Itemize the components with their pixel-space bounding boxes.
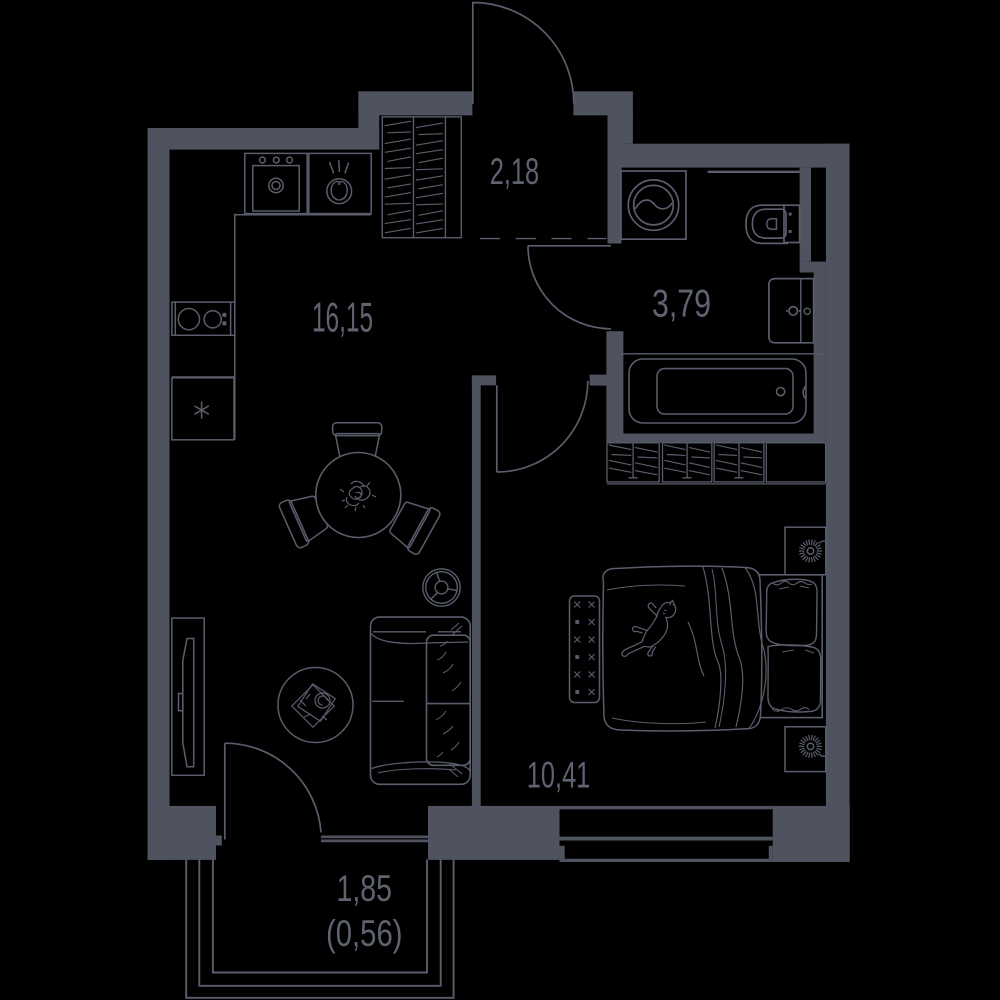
svg-text:10,41: 10,41	[527, 755, 591, 796]
svg-text:1,85: 1,85	[337, 867, 393, 909]
svg-text:16,15: 16,15	[312, 293, 373, 340]
svg-text:(0,56): (0,56)	[326, 912, 403, 954]
svg-text:2,18: 2,18	[490, 150, 540, 192]
svg-text:3,79: 3,79	[652, 283, 711, 326]
